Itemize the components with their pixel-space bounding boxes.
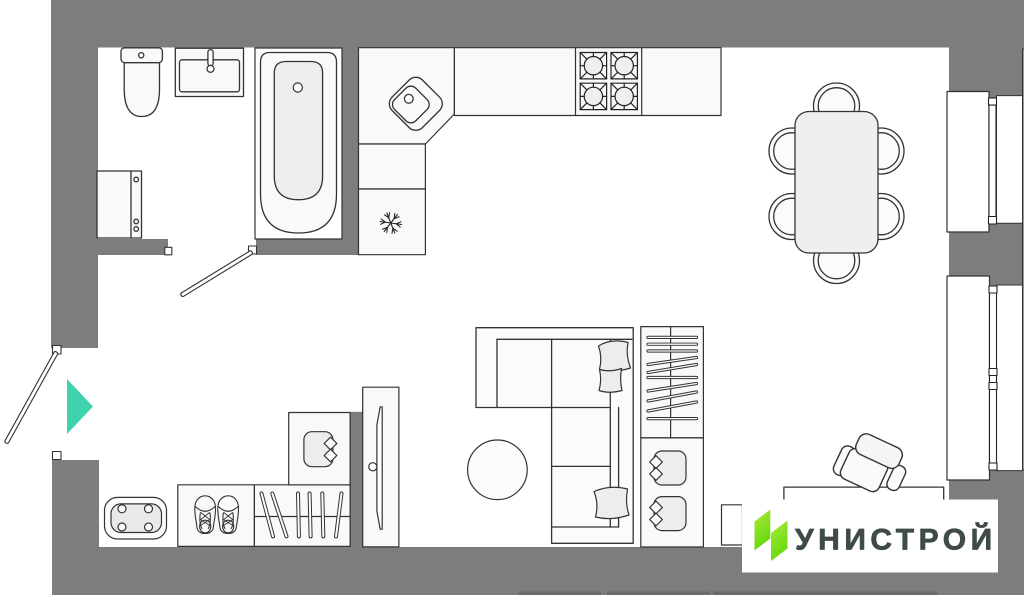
svg-text:УНИСТРОЙ: УНИСТРОЙ xyxy=(795,523,997,557)
